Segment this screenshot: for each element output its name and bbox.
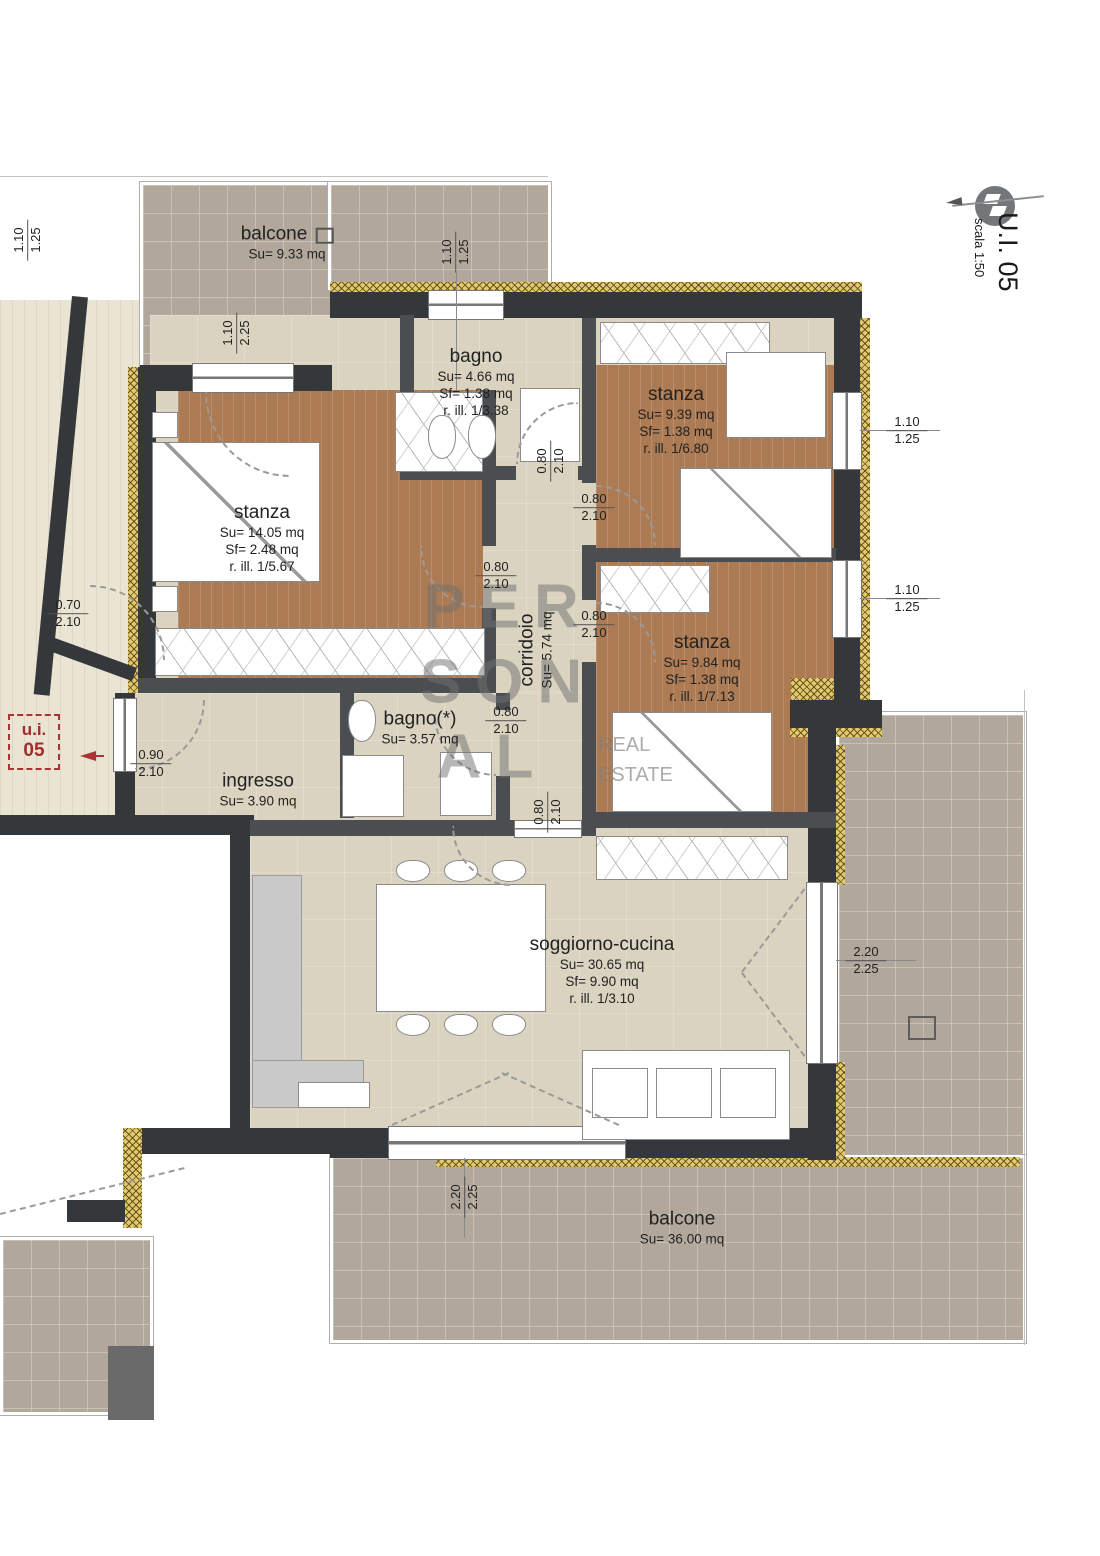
dimension: 0.802.10 <box>573 609 614 641</box>
single-bed <box>680 468 832 558</box>
insulation-strip <box>330 282 862 292</box>
room-label-ingresso: ingresso Su= 3.90 mq <box>220 770 297 811</box>
exterior-wall-step <box>790 700 882 728</box>
kitchen-sink-cabinet <box>298 1082 370 1108</box>
balcony-right-floor <box>836 712 1026 1166</box>
french-door-right <box>806 882 838 1064</box>
dimension: 1.101.25 <box>886 415 927 447</box>
room-label-stanza-ne: stanza Su= 9.39 mq Sf= 1.38 mq r. ill. 1… <box>638 383 715 457</box>
insulation-strip <box>790 728 882 737</box>
balcony-bottom-floor <box>330 1155 1026 1343</box>
exterior-wall <box>292 365 332 391</box>
sofa-cushion <box>592 1068 648 1118</box>
sofa-cushion <box>720 1068 776 1118</box>
dimension: 2.202.25 <box>845 945 886 977</box>
exterior-wall-east <box>834 318 860 712</box>
chair <box>396 860 430 882</box>
bathroom-window <box>428 290 504 320</box>
bedroom-ne-window <box>832 392 862 470</box>
floor-plan-sheet: PER SON AL REAL ESTATE balcone Su= 9.33 … <box>0 0 1100 1556</box>
bedroom-e-window <box>832 560 862 638</box>
partition <box>582 318 596 483</box>
sofa-cushion <box>656 1068 712 1118</box>
unit-tag-arrow-line <box>94 755 104 757</box>
partition <box>580 820 596 836</box>
dimension: 1.102.25 <box>221 312 253 353</box>
sheet-title: U.I. 05 <box>992 212 1023 292</box>
room-label-stanza-w: stanza Su= 14.05 mq Sf= 2.48 mq r. ill. … <box>220 501 304 575</box>
dimension: 1.101.25 <box>12 219 44 260</box>
dimension: 0.802.10 <box>573 492 614 524</box>
insulation-strip <box>860 318 870 714</box>
desk <box>726 352 826 438</box>
party-wall <box>67 1200 125 1222</box>
kitchen-counter <box>252 875 302 1075</box>
room-label-bagno: bagno Su= 4.66 mq Sf= 1.38 mq r. ill. 1/… <box>438 345 515 419</box>
chair <box>492 1014 526 1036</box>
partition <box>582 545 596 562</box>
watermark-subtext: REAL ESTATE <box>598 730 673 790</box>
party-wall <box>230 815 250 1140</box>
insulation-strip <box>836 1062 845 1157</box>
room-label-balcone-top: balcone Su= 9.33 mq <box>241 223 334 264</box>
room-label-corridoio: corridoio Su= 5.74 mq <box>516 612 557 689</box>
north-arrow-head <box>946 197 963 207</box>
dimension: 0.802.10 <box>535 440 567 481</box>
chair <box>444 1014 478 1036</box>
unit-tag: u.i. 05 <box>8 714 60 770</box>
dimension: 1.101.25 <box>886 583 927 615</box>
nightstand <box>152 586 178 612</box>
sheet-frame-line <box>1024 690 1025 1345</box>
exterior-wall-bottom <box>330 1128 388 1158</box>
wall-stub <box>108 1346 154 1420</box>
dimension: 0.702.10 <box>47 598 88 630</box>
dimension: 1.101.25 <box>440 231 472 272</box>
dining-table <box>376 884 546 1012</box>
sideboard <box>596 836 788 880</box>
partition <box>596 812 836 828</box>
chair <box>396 1014 430 1036</box>
balcony-marker-square <box>315 227 333 243</box>
toilet <box>428 415 456 459</box>
dimension: 2.202.25 <box>449 1176 481 1217</box>
room-label-bagno2: bagno(*) Su= 3.57 mq <box>382 708 459 749</box>
room-label-balcone-bottom: balcone Su= 36.00 mq <box>640 1208 724 1249</box>
sink-counter <box>342 755 404 817</box>
drain-square <box>908 1016 936 1040</box>
balcony-door-top <box>192 363 294 393</box>
dimension: 0.902.10 <box>130 748 171 780</box>
dimension: 0.802.10 <box>485 705 526 737</box>
sheet-frame-line <box>0 176 548 177</box>
bidet <box>468 415 496 459</box>
dimension: 0.802.10 <box>475 560 516 592</box>
room-label-stanza-e: stanza Su= 9.84 mq Sf= 1.38 mq r. ill. 1… <box>664 631 741 705</box>
dimension: 0.802.10 <box>532 791 564 832</box>
insulation-strip <box>836 745 845 885</box>
room-label-soggiorno: soggiorno-cucina Su= 30.65 mq Sf= 9.90 m… <box>530 933 675 1007</box>
party-wall <box>142 1128 338 1154</box>
sheet-scale: scala 1:50 <box>972 218 987 277</box>
toilet <box>348 700 376 742</box>
nightstand <box>152 412 178 438</box>
